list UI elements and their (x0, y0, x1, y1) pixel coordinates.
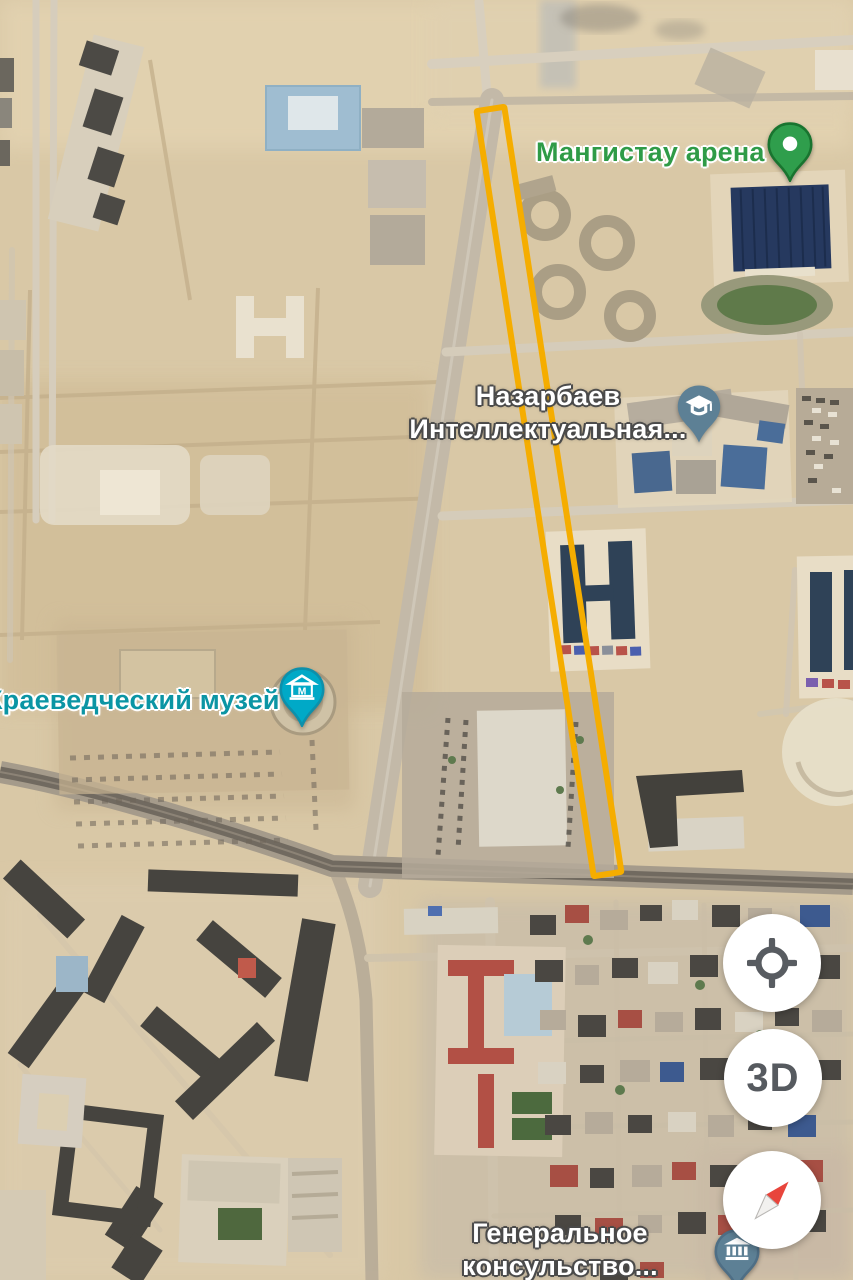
place-pin-icon (767, 122, 813, 182)
museum-pin-icon: М (279, 667, 325, 727)
label-mangistau-arena[interactable]: Мангистау арена (536, 136, 765, 169)
label-line: консульство... (462, 1250, 658, 1280)
compass-button[interactable] (723, 1151, 821, 1249)
label-line: Интеллектуальная... (409, 413, 686, 446)
map-viewport[interactable]: Мангистау арена Назарбаев Интеллектуальн… (0, 0, 853, 1280)
crosshair-icon (747, 938, 797, 988)
museum-pin[interactable]: М (279, 667, 325, 727)
label-consulate[interactable]: Генеральное консульство... (462, 1217, 658, 1280)
school-pin[interactable] (676, 384, 722, 444)
my-location-button[interactable] (723, 914, 821, 1012)
3d-view-button[interactable]: 3D (724, 1029, 822, 1127)
3d-label: 3D (746, 1056, 799, 1101)
label-museum[interactable]: Краеведческий музей (0, 684, 280, 717)
label-nazarbayev-school[interactable]: Назарбаев Интеллектуальная... (409, 380, 686, 446)
label-line: Генеральное (462, 1217, 658, 1250)
label-line: Назарбаев (409, 380, 686, 413)
svg-text:М: М (298, 686, 307, 697)
arena-pin[interactable] (767, 122, 813, 182)
education-pin-icon (676, 384, 722, 444)
compass-needle-icon (744, 1172, 800, 1228)
